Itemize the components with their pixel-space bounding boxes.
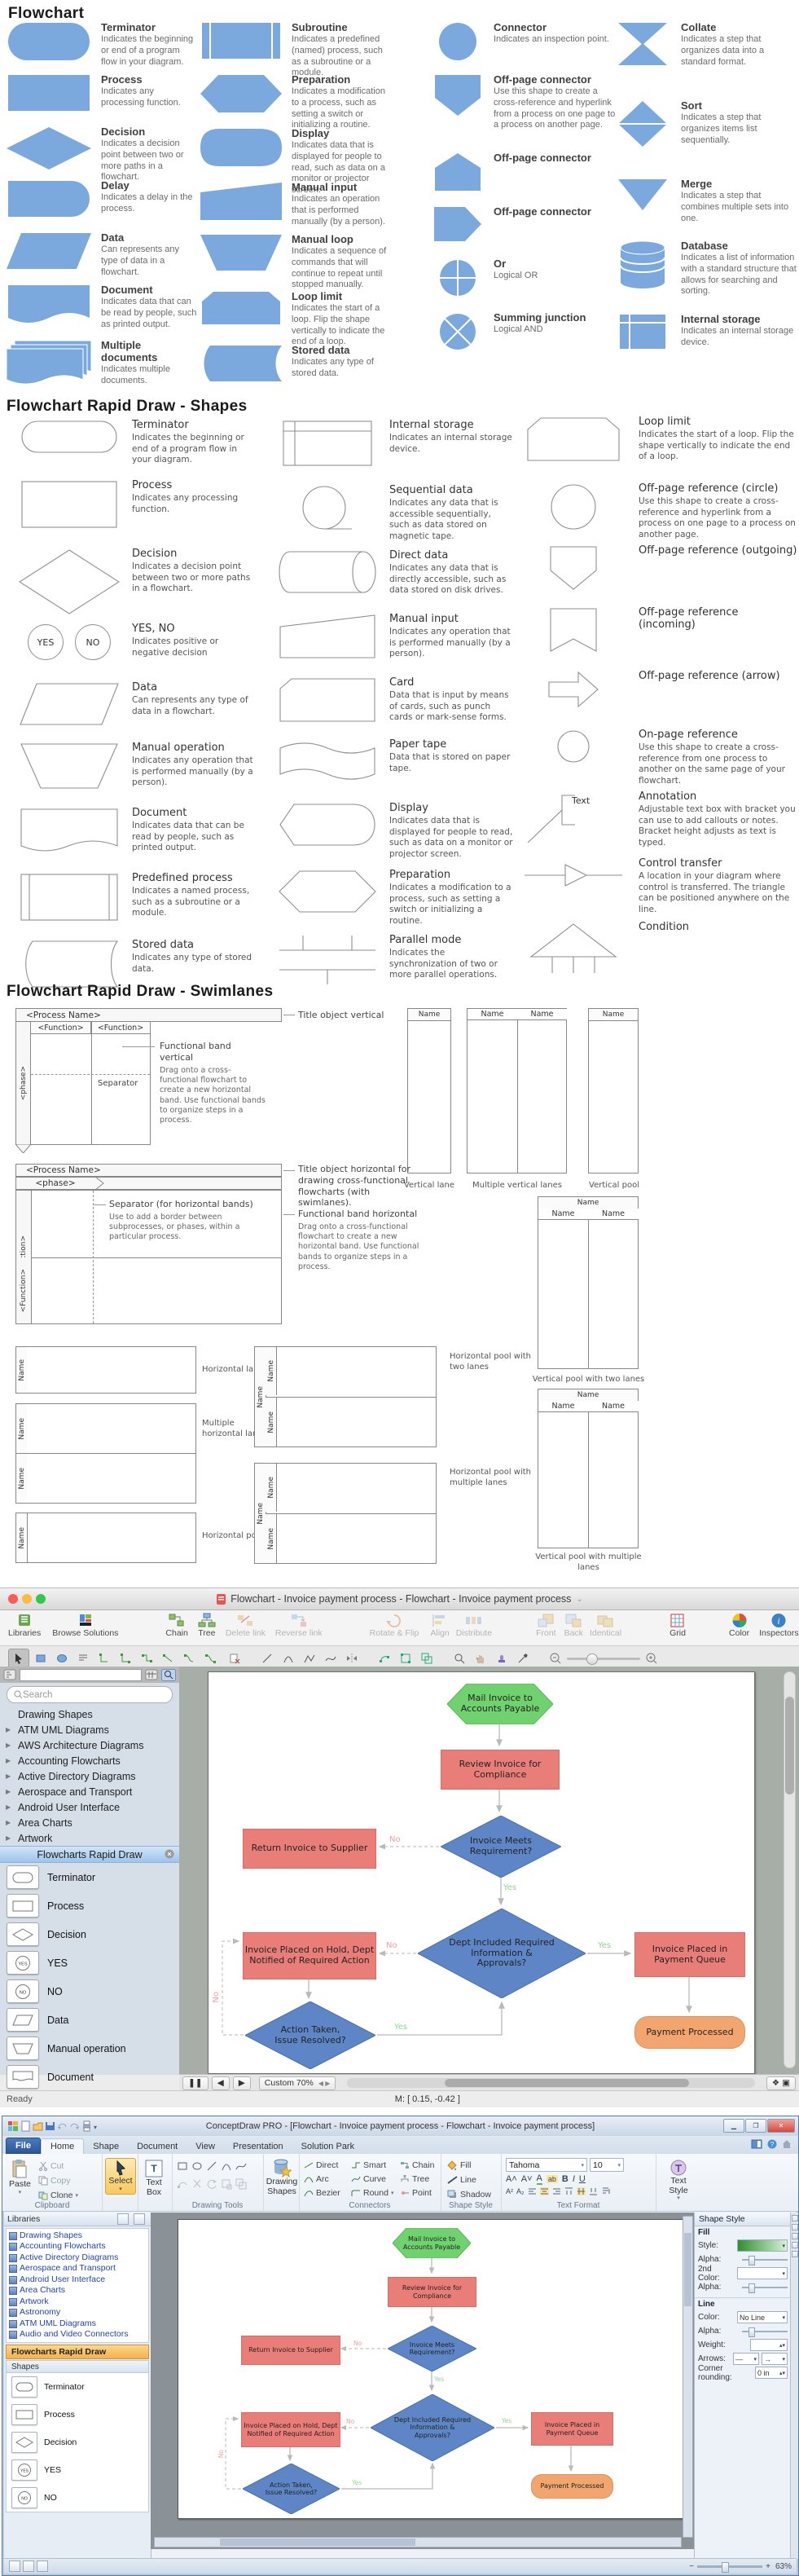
connector-tree[interactable]: Tree xyxy=(400,2173,436,2186)
s1-col4: CollateIndicates a step that organizes d… xyxy=(614,21,797,363)
cut-icon xyxy=(38,2161,48,2171)
corner-rounding-stepper[interactable]: 0 in▴▾ xyxy=(755,2367,788,2379)
alpha2-label: Alpha: xyxy=(698,2283,740,2292)
spline-tool[interactable] xyxy=(321,1649,340,1667)
alpha-label: Alpha: xyxy=(698,2255,740,2264)
win-sidebar: Libraries Drawing Shapes Accounting Flow… xyxy=(4,2213,151,2559)
flow-node-start[interactable]: Mail Invoice to Accounts Payable xyxy=(393,2228,471,2258)
copy-button[interactable]: Copy xyxy=(38,2174,78,2187)
shape-item-terminator[interactable]: Terminator xyxy=(6,2373,149,2401)
cut-button[interactable]: Cut xyxy=(38,2160,78,2173)
legend-offpage-right: Off-page connector xyxy=(432,205,617,258)
annotation-text: Text xyxy=(572,795,590,806)
fill-style-select[interactable]: ▾ xyxy=(737,2239,788,2252)
lib-astronomy[interactable]: Astronomy xyxy=(7,2307,148,2318)
strip-icon[interactable] xyxy=(792,2215,798,2222)
function-header: <Function> xyxy=(31,1022,91,1034)
textbox-button[interactable]: TText Box xyxy=(140,2159,168,2197)
inspectors-button[interactable]: iInspectors xyxy=(759,1613,798,1639)
horizontal-pool-multiple-lanes-caption: Horizontal pool with multiple lanes xyxy=(450,1467,547,1488)
sidebar-item-artwork[interactable]: ▶Artwork xyxy=(0,1830,179,1846)
flow-node-action[interactable]: Action Taken, Issue Resolved? xyxy=(245,2001,375,2069)
polyline-tool[interactable] xyxy=(300,1649,319,1667)
help-icon[interactable]: ? xyxy=(767,2139,777,2149)
tab-presentation[interactable]: Presentation xyxy=(224,2139,292,2154)
undo-icon[interactable] xyxy=(57,2120,68,2132)
align-right-icon[interactable] xyxy=(552,2187,561,2195)
manual-input-shape-icon xyxy=(200,183,282,220)
chain-button[interactable]: Chain xyxy=(165,1613,187,1639)
vertical-scrollbar[interactable] xyxy=(784,1671,796,2068)
flow-node-hold[interactable]: Invoice Placed on Hold, Dept Notified of… xyxy=(243,1932,376,1979)
minimize-button[interactable] xyxy=(22,1594,32,1604)
align-center-icon[interactable] xyxy=(540,2187,549,2195)
open-icon[interactable] xyxy=(33,2120,43,2132)
legend-preparation: PreparationIndicates a modification to a… xyxy=(200,73,393,127)
zoom-out-icon[interactable] xyxy=(549,1652,562,1665)
flow-node-review[interactable]: Review Invoice for Compliance xyxy=(441,1750,560,1790)
connector-smart[interactable]: Smart xyxy=(351,2159,397,2172)
mirror-tool[interactable] xyxy=(342,1649,362,1667)
strip-icon[interactable] xyxy=(792,2233,798,2239)
connector-tool-5[interactable] xyxy=(179,1649,199,1667)
highlight-button[interactable]: ab xyxy=(547,2175,558,2183)
align-top-icon[interactable] xyxy=(564,2187,573,2195)
lib-aerospace[interactable]: Aerospace and Transport xyxy=(7,2263,148,2274)
shape-item-document[interactable]: Document xyxy=(0,2063,179,2091)
lib-accounting-flowcharts[interactable]: Accounting Flowcharts xyxy=(7,2241,148,2252)
shape-item-manual-operation[interactable]: Manual operation xyxy=(0,2034,179,2063)
sidebar-item-atm-uml[interactable]: ▶ATM UML Diagrams xyxy=(0,1722,179,1737)
flow-node-payment[interactable]: Payment Processed xyxy=(531,2474,613,2499)
connector-point[interactable]: Point xyxy=(400,2186,436,2200)
rd-direct-data: Direct dataIndicates any data that is di… xyxy=(275,549,513,613)
horizontal-scrollbar[interactable] xyxy=(347,2078,754,2088)
sidebar-item-aerospace[interactable]: ▶Aerospace and Transport xyxy=(0,1784,179,1799)
stamp-tool[interactable] xyxy=(492,1649,511,1667)
sidebar-item-aws[interactable]: ▶AWS Architecture Diagrams xyxy=(0,1737,179,1753)
crop-icon[interactable] xyxy=(221,2178,232,2190)
win-titlebar: ▾ ConceptDraw PRO - [Flowchart - Invoice… xyxy=(2,2116,798,2136)
multiple-documents-shape-icon xyxy=(7,341,91,385)
win-window-title: ConceptDraw PRO - [Flowchart - Invoice p… xyxy=(2,2121,798,2131)
ellipse-tool[interactable] xyxy=(52,1649,72,1667)
search-view-icon[interactable] xyxy=(161,1669,176,1681)
process-shape-icon xyxy=(8,75,90,111)
reverse-link-button[interactable]: Reverse link xyxy=(275,1613,323,1639)
connector-tool-2[interactable] xyxy=(116,1649,135,1667)
multiple-vertical-lanes-caption: Multiple vertical lanes xyxy=(469,1180,565,1191)
grid-button[interactable]: Grid xyxy=(669,1613,687,1639)
arc-tool[interactable] xyxy=(279,1649,298,1667)
connector-tool-1[interactable] xyxy=(94,1649,114,1667)
color-button[interactable]: Color xyxy=(729,1613,749,1639)
zoom-out-button[interactable]: − xyxy=(689,2562,694,2571)
libraries-button[interactable]: Libraries xyxy=(8,1613,41,1639)
document-icon xyxy=(216,1593,226,1605)
rd-offpage-circle: Off-page reference (circle)Use this shap… xyxy=(518,482,798,544)
arrows-label: Arrows: xyxy=(698,2354,731,2363)
distribute-button[interactable]: Distribute xyxy=(456,1613,492,1639)
tree-icon xyxy=(198,1613,216,1628)
lib-atm-uml[interactable]: ATM UML Diagrams xyxy=(7,2318,148,2329)
tab-document[interactable]: Document xyxy=(128,2139,187,2154)
connector-tool-6[interactable] xyxy=(200,1649,220,1667)
rd-manual-input: Manual inputIndicates any operation that… xyxy=(275,613,513,676)
connector-tool-4[interactable] xyxy=(158,1649,178,1667)
corner-buttons[interactable]: ❖ ▣ xyxy=(766,2076,796,2090)
connector-round[interactable]: Round▾ xyxy=(351,2186,397,2200)
shape-item-no[interactable]: NONO xyxy=(0,1977,179,2006)
shape-item-yes[interactable]: YESYES xyxy=(0,1949,179,1977)
sidebar-item-accounting[interactable]: ▶Accounting Flowcharts xyxy=(0,1753,179,1768)
second-alpha-slider[interactable] xyxy=(742,2283,788,2292)
fill-alpha-slider[interactable] xyxy=(742,2256,788,2264)
minimize-button[interactable]: ▁ xyxy=(723,2119,744,2133)
sidebar-item-android[interactable]: ▶Android User Interface xyxy=(0,1799,179,1815)
flow-node-review[interactable]: Review Invoice for Compliance xyxy=(388,2277,476,2307)
quick-access-toolbar: ▾ xyxy=(7,2120,97,2132)
separator-horizontal-annotation: Separator (for horizontal bands) Use to … xyxy=(109,1199,256,1243)
clone-icon xyxy=(38,2191,48,2200)
crop-tool[interactable] xyxy=(396,1649,415,1667)
rotate-flip-icon xyxy=(385,1613,403,1628)
rd-manual-operation: Manual operationIndicates any operation … xyxy=(16,742,257,807)
phase-band-horizontal: <phase> xyxy=(15,1177,282,1190)
font-buttons-row1: A˄A˅ A ab BIU xyxy=(506,2173,586,2185)
tab-file[interactable]: File xyxy=(6,2138,41,2154)
zoom-button[interactable] xyxy=(36,1594,46,1604)
font-buttons-row2: A² A₂ xyxy=(506,2187,610,2195)
flow-node-decision1[interactable]: Invoice Meets Requirement? xyxy=(441,1816,561,1878)
horizontal-pool-two-lanes-box: Name Name Name xyxy=(254,1346,437,1447)
edge-label-yes: Yes xyxy=(394,2023,407,2032)
multiple-vertical-lanes-box: Name Name xyxy=(467,1008,567,1174)
line-alpha-slider[interactable] xyxy=(742,2327,788,2336)
align-left-icon[interactable] xyxy=(528,2187,537,2195)
select-button[interactable]: Select▾ xyxy=(105,2158,136,2195)
library-toolbar-button[interactable] xyxy=(134,2213,145,2225)
text-tool[interactable] xyxy=(73,1649,93,1667)
legend-offpage-down: Off-page connectorUse this shape to crea… xyxy=(432,73,617,152)
tab-solution-park[interactable]: Solution Park xyxy=(292,2139,363,2154)
shape-item-process[interactable]: Process xyxy=(0,1891,179,1920)
condition-outline-icon xyxy=(528,923,619,975)
mac-window-title: Flowchart - Invoice payment process - Fl… xyxy=(230,1593,571,1605)
font-color-button[interactable]: A xyxy=(537,2173,542,2185)
connector-curve[interactable]: Curve xyxy=(351,2173,397,2186)
multiple-horizontal-lanes-box1: Name xyxy=(15,1403,196,1454)
vertical-scrollbar[interactable] xyxy=(683,2216,693,2538)
manual-operation-outline-icon xyxy=(20,743,118,789)
group-icon[interactable] xyxy=(235,2178,247,2190)
save-icon[interactable] xyxy=(45,2120,55,2132)
rect-tool[interactable] xyxy=(31,1649,50,1667)
bold-button[interactable]: B xyxy=(562,2174,569,2184)
legend-or: OrLogical OR xyxy=(432,258,617,311)
sidebar-item-drawing-shapes[interactable]: Drawing Shapes xyxy=(0,1706,179,1722)
connector-direct[interactable]: Direct xyxy=(304,2159,348,2172)
horizontal-scrollbar[interactable] xyxy=(154,2537,682,2547)
document-shape-icon xyxy=(8,285,90,326)
zoom-level-control[interactable]: Custom 70%◀ ▶ xyxy=(259,2076,336,2090)
multiple-horizontal-lanes-box2: Name xyxy=(15,1453,196,1504)
tab-home[interactable]: Home xyxy=(41,2138,84,2154)
section2-title: Flowchart Rapid Draw - Shapes xyxy=(7,398,248,416)
paste-button[interactable]: Paste▾ xyxy=(9,2159,31,2195)
sidebar-item-active-directory[interactable]: ▶Active Directory Diagrams xyxy=(0,1768,179,1784)
zoom-slider[interactable] xyxy=(567,1658,640,1660)
grow-font-button[interactable]: A˄ xyxy=(506,2174,517,2184)
distribute-icon xyxy=(465,1613,483,1628)
flow-node-hold[interactable]: Invoice Placed on Hold, Dept Notified of… xyxy=(241,2412,340,2447)
browse-solutions-button[interactable]: Browse Solutions xyxy=(52,1613,118,1639)
scissors-icon[interactable] xyxy=(191,2178,203,2190)
lib-android[interactable]: Android User Interface xyxy=(7,2274,148,2285)
loop-limit-outline-icon xyxy=(527,417,620,461)
tab-shape[interactable]: Shape xyxy=(84,2139,128,2154)
yes-circle: YES xyxy=(28,624,64,660)
mac-bottom-bar: ❚❚ ◀ ▶ Custom 70%◀ ▶ ❖ ▣ xyxy=(179,2074,799,2091)
offpage-arrow-outline-icon xyxy=(548,672,599,707)
vertical-lane-box: Name xyxy=(407,1008,451,1174)
delete-shape-tool[interactable] xyxy=(225,1649,244,1667)
legend-summing-junction: Summing junctionLogical AND xyxy=(432,311,617,363)
pointer-tool[interactable] xyxy=(8,1649,29,1668)
flow-node-return[interactable]: Return Invoice to Supplier xyxy=(241,2336,340,2365)
subroutine-shape-icon xyxy=(202,23,280,59)
draw-ellipse-icon[interactable] xyxy=(191,2160,203,2172)
back-button[interactable]: Back xyxy=(564,1613,583,1639)
eyedropper-tool[interactable] xyxy=(513,1649,533,1667)
subscript-button[interactable]: A₂ xyxy=(516,2187,525,2195)
connector-tool-3[interactable] xyxy=(137,1649,156,1667)
active-library-flowcharts-rapid-draw[interactable]: Flowcharts Rapid Draw xyxy=(6,2345,149,2359)
shrink-font-button[interactable]: A˅ xyxy=(521,2174,533,2184)
phase-chevron xyxy=(94,1177,104,1190)
print-icon[interactable] xyxy=(81,2120,92,2132)
group-shape-style: Fill Line Shadow Shape Style xyxy=(441,2154,502,2211)
legend-manual-input: Manual inputIndicates an operation that … xyxy=(200,181,393,233)
group-tool[interactable] xyxy=(417,1649,437,1667)
flow-node-queue[interactable]: Invoice Placed in Payment Queue xyxy=(531,2412,613,2446)
svg-text:i: i xyxy=(778,1617,780,1627)
drawing-shapes-button[interactable]: Drawing Shapes xyxy=(266,2158,298,2196)
legend-merge: MergeIndicates a step that combines mult… xyxy=(614,178,797,240)
offpage-connector-down-icon xyxy=(435,75,481,116)
pan-tool[interactable] xyxy=(471,1649,490,1667)
connector-arc[interactable]: Arc xyxy=(304,2173,348,2186)
sidebar-item-area-charts[interactable]: ▶Area Charts xyxy=(0,1815,179,1830)
connector-chain[interactable]: Chain xyxy=(400,2159,436,2172)
shape-item-decision[interactable]: Decision xyxy=(6,2428,149,2456)
lib-artwork[interactable]: Artwork xyxy=(7,2296,148,2307)
rd-control-transfer: Control transferA location in your diagr… xyxy=(518,857,798,921)
lib-area-charts[interactable]: Area Charts xyxy=(7,2285,148,2296)
mac-titlebar: Flowchart - Invoice payment process - Fl… xyxy=(0,1588,799,1610)
delete-link-icon xyxy=(236,1613,254,1628)
database-shape-icon xyxy=(621,241,665,288)
identical-button[interactable]: Identical xyxy=(590,1613,621,1639)
rd-offpage-incoming: Off-page reference (incoming) xyxy=(518,606,798,670)
win-canvas[interactable]: Mail Invoice to Accounts Payable Review … xyxy=(151,2213,695,2549)
align-middle-icon[interactable] xyxy=(577,2187,586,2195)
app-icon[interactable] xyxy=(7,2120,19,2132)
active-library-flowcharts-rapid-draw[interactable]: Flowcharts Rapid Draw xyxy=(0,1846,179,1863)
edge-label-yes: Yes xyxy=(352,2479,362,2486)
textbox-icon: T xyxy=(145,2159,163,2178)
underline-button[interactable]: U xyxy=(579,2174,586,2184)
flow-node-start[interactable]: Mail Invoice to Accounts Payable xyxy=(447,1684,553,1724)
weight-stepper[interactable]: ▴▾ xyxy=(750,2339,788,2351)
grid-view-icon[interactable] xyxy=(145,1669,158,1680)
title-chevron-icon: ⌄ xyxy=(576,1595,582,1604)
mac-canvas[interactable]: Mail Invoice to Accounts Payable Review … xyxy=(179,1667,799,2075)
label-title-object-vertical: Title object vertical xyxy=(298,1010,412,1021)
group-select: Select▾ xyxy=(102,2154,138,2211)
lib-active-directory[interactable]: Active Directory Diagrams xyxy=(7,2252,148,2263)
qat-dropdown-icon[interactable]: ▾ xyxy=(94,2124,97,2132)
vertical-pool-multiple-lanes-caption: Vertical pool with multiple lanes xyxy=(525,1552,652,1573)
rd-process: ProcessIndicates any processing function… xyxy=(16,479,257,548)
status-ready: Ready xyxy=(7,2094,33,2104)
reverse-link-icon xyxy=(290,1613,308,1628)
tree-view-icon[interactable] xyxy=(3,1669,16,1680)
connector-bezier[interactable]: Bezier xyxy=(304,2186,348,2200)
flow-node-decision2[interactable]: Dept Included Required Information & App… xyxy=(418,1909,586,1998)
zoom-slider[interactable] xyxy=(697,2565,762,2568)
stored-data-shape-icon xyxy=(200,346,282,381)
flow-node-payment[interactable]: Payment Processed xyxy=(634,2016,745,2049)
close-button[interactable] xyxy=(8,1594,18,1604)
line-tool[interactable] xyxy=(257,1649,277,1667)
italic-button[interactable]: I xyxy=(573,2174,575,2184)
zoom-tool[interactable] xyxy=(450,1649,469,1667)
text-style-button[interactable]: Text Style▾ xyxy=(661,2159,696,2202)
library-toolbar-button[interactable] xyxy=(117,2213,129,2225)
second-color-label: 2nd Color: xyxy=(698,2265,735,2283)
status-icon[interactable] xyxy=(23,2561,34,2572)
next-page-button[interactable]: ▶ xyxy=(233,2076,251,2090)
legend-collate: CollateIndicates a step that organizes d… xyxy=(614,21,797,99)
flow-node-decision1[interactable]: Invoice Meets Requirement? xyxy=(388,2326,476,2371)
status-icon[interactable] xyxy=(9,2561,20,2572)
shape-item-decision[interactable]: Decision xyxy=(0,1920,179,1949)
lib-audio-video[interactable]: Audio and Video Connectors xyxy=(7,2329,148,2340)
close-library-icon[interactable] xyxy=(165,1849,174,1859)
lib-drawing-shapes[interactable]: Drawing Shapes xyxy=(7,2230,148,2241)
flow-node-queue[interactable]: Invoice Placed in Payment Queue xyxy=(634,1932,745,1977)
shape-item-terminator[interactable]: Terminator xyxy=(0,1863,179,1891)
shape-item-yes[interactable]: YESYES xyxy=(6,2456,149,2484)
draw-line-icon[interactable] xyxy=(206,2160,217,2172)
paragraph-icon[interactable] xyxy=(601,2187,610,2195)
edge-label-yes: Yes xyxy=(434,2376,444,2383)
group-drawing-tools: Drawing Tools xyxy=(172,2154,264,2211)
strip-icon[interactable] xyxy=(792,2224,798,2230)
redo-icon[interactable] xyxy=(69,2120,80,2132)
new-document-icon[interactable] xyxy=(20,2120,31,2132)
strip-icon[interactable] xyxy=(792,2251,798,2257)
pause-button[interactable]: ❚❚ xyxy=(182,2076,209,2090)
clone-button[interactable]: Clone▾ xyxy=(38,2189,78,2202)
align-button[interactable]: Align xyxy=(430,1613,449,1639)
search-input[interactable]: Search xyxy=(7,1686,173,1703)
horizontal-lane-box: Name xyxy=(15,1346,196,1394)
rotate-icon[interactable] xyxy=(206,2178,217,2190)
control-transfer-outline-icon xyxy=(525,859,622,892)
strip-icon[interactable] xyxy=(792,2242,798,2248)
arrow-end-select[interactable]: →▾ xyxy=(762,2353,788,2365)
rd-offpage-outgoing: Off-page reference (outgoing) xyxy=(518,544,798,606)
second-color-select[interactable]: ▾ xyxy=(737,2267,788,2279)
line-color-select[interactable]: No Line▾ xyxy=(737,2311,788,2323)
reshape-icon[interactable] xyxy=(177,2178,188,2190)
draw-rect-icon[interactable] xyxy=(177,2160,188,2172)
restore-button[interactable]: ❐ xyxy=(745,2119,766,2133)
tree-button[interactable]: Tree xyxy=(198,1613,216,1639)
zoom-in-button[interactable]: + xyxy=(766,2562,770,2571)
reshape-tool[interactable] xyxy=(375,1649,394,1667)
back-icon xyxy=(564,1613,582,1628)
rd-loop-limit: Loop limitIndicates the start of a loop.… xyxy=(518,416,798,482)
inspector-strip xyxy=(790,2213,798,2559)
offpage-connector-up-icon xyxy=(435,153,481,191)
internal-storage-shape-icon xyxy=(620,315,665,349)
fill-button[interactable]: Fill xyxy=(447,2159,491,2172)
draw-spline-icon[interactable] xyxy=(235,2160,247,2172)
horizontal-pool-two-lanes-caption: Horizontal pool with two lanes xyxy=(450,1351,539,1372)
delete-link-button[interactable]: Delete link xyxy=(226,1613,266,1639)
shape-item-no[interactable]: NONO xyxy=(6,2484,149,2512)
font-size-select[interactable]: 10▾ xyxy=(590,2158,624,2172)
panel-toggle-icon[interactable] xyxy=(751,2139,762,2149)
tab-view[interactable]: View xyxy=(187,2139,224,2154)
shadow-button[interactable]: Shadow xyxy=(447,2188,491,2201)
manual-input-outline-icon xyxy=(279,614,375,658)
superscript-button[interactable]: A² xyxy=(506,2187,513,2195)
edge-label-yes: Yes xyxy=(502,2417,511,2424)
swim-body-vertical: <Function> <Function> Separator xyxy=(30,1021,151,1145)
flow-node-action[interactable]: Action Taken, Issue Resolved? xyxy=(243,2464,340,2514)
align-bottom-icon[interactable] xyxy=(589,2187,598,2195)
shape-item-data[interactable]: Data xyxy=(0,2006,179,2034)
flow-node-decision2[interactable]: Dept Included Required Information & App… xyxy=(371,2394,494,2461)
decision-outline-icon xyxy=(19,549,120,614)
leader-line xyxy=(122,1046,155,1047)
identical-icon xyxy=(596,1613,614,1628)
zoom-in-icon[interactable] xyxy=(645,1652,658,1665)
offpage-outgoing-outline-icon xyxy=(550,546,597,590)
front-button[interactable]: Front xyxy=(536,1613,556,1639)
shape-item-process[interactable]: Process xyxy=(6,2401,149,2428)
line-button[interactable]: Line xyxy=(447,2173,491,2186)
flow-node-return[interactable]: Return Invoice to Supplier xyxy=(243,1829,376,1869)
prev-page-button[interactable]: ◀ xyxy=(212,2076,230,2090)
font-family-select[interactable]: Tahoma▾ xyxy=(506,2158,587,2172)
draw-arc-icon[interactable] xyxy=(221,2160,232,2172)
status-icon[interactable] xyxy=(37,2561,48,2572)
search-icon xyxy=(14,1690,23,1699)
legend-document: DocumentIndicates data that can be read … xyxy=(7,284,197,339)
close-button[interactable]: ✕ xyxy=(767,2119,795,2133)
home-icon[interactable] xyxy=(782,2139,792,2149)
legend-manual-loop: Manual loopIndicates a sequence of comma… xyxy=(200,233,393,290)
manual-loop-shape-icon xyxy=(200,235,282,271)
rotate-flip-button[interactable]: Rotate & Flip xyxy=(370,1613,419,1639)
fill-section-label: Fill xyxy=(695,2226,791,2239)
select-cursor-icon xyxy=(114,2160,127,2177)
